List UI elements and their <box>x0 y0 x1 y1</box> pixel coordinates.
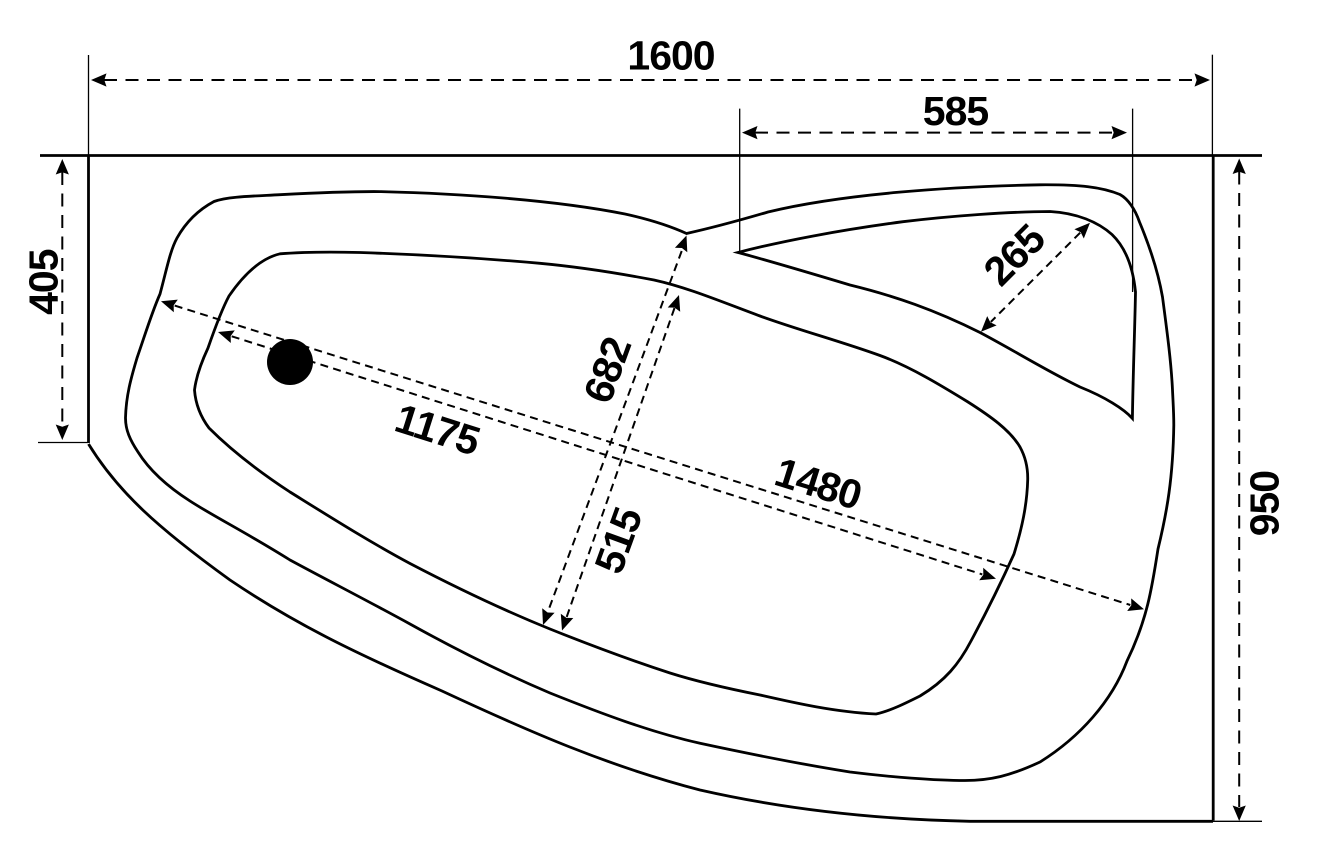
svg-text:585: 585 <box>923 88 989 134</box>
svg-text:1600: 1600 <box>627 33 714 79</box>
svg-text:405: 405 <box>21 249 67 315</box>
svg-text:950: 950 <box>1242 471 1288 537</box>
